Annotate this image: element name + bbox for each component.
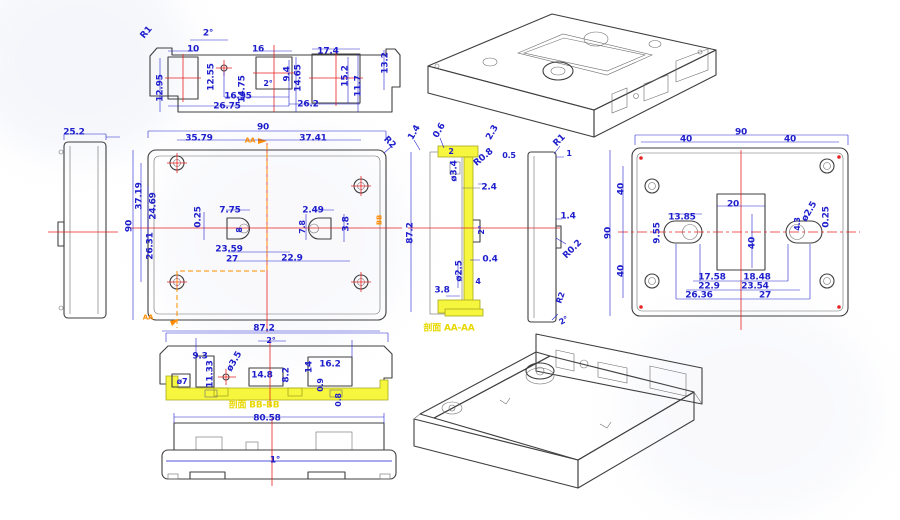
dim-label: 15.2 (342, 65, 351, 86)
dim-label: 0.5 (502, 152, 516, 160)
dim-label: 9.4 (284, 66, 293, 81)
drawing-canvas: R12°1012.5512.95169.42°14.7514.6517.415.… (0, 0, 900, 500)
dim-label: 1 (566, 150, 571, 158)
dim-label: 16.2 (319, 361, 340, 370)
dim-label: 2° (478, 225, 486, 234)
dim-label: 4 (475, 278, 480, 286)
dim-label: 7.8 (299, 220, 307, 234)
dim-label: 25.2 (63, 129, 84, 138)
dim-label: 80.58 (253, 415, 280, 424)
dim-label: ø2.5 (801, 201, 819, 224)
dim-label: 40 (618, 265, 627, 277)
dim-label: 40 (749, 237, 758, 249)
dim-label: 0.8 (335, 393, 343, 407)
dim-label: 2° (558, 315, 570, 327)
dim-label: ø3.5 (226, 351, 244, 374)
dim-label: R0.2 (562, 239, 584, 261)
dim-label: 16.95 (224, 93, 251, 102)
dim-label: 14.65 (295, 64, 304, 91)
dim-label: 26.36 (685, 292, 712, 301)
dim-label: 2° (266, 337, 275, 345)
dim-label: 40 (680, 136, 692, 145)
dim-label: 剖面 AA-AA (423, 325, 474, 334)
dim-label: ø2.5 (456, 260, 465, 281)
dim-label: 4.3 (794, 217, 802, 231)
dim-label: 37.19 (136, 182, 145, 209)
dim-label: 2° (203, 30, 213, 39)
dim-label: 27 (226, 256, 238, 265)
dim-label: 14.8 (251, 372, 272, 381)
dim-label: 0.25 (823, 206, 832, 227)
dim-label: 3.8 (434, 287, 449, 296)
dim-label: R2 (381, 135, 396, 150)
dim-label: 剖面 BB-BB (229, 402, 280, 411)
dim-label: 13.85 (668, 214, 695, 223)
dim-label: 12.55 (208, 63, 217, 90)
dim-label: 23.59 (215, 246, 242, 255)
dim-label: 2.3 (485, 124, 500, 142)
dim-label: 90 (126, 220, 135, 232)
dim-label: 87.2 (407, 222, 416, 243)
dim-label: 8 (236, 227, 244, 232)
dim-label: 0.25 (195, 206, 204, 227)
dim-label: 7.75 (219, 207, 240, 216)
dim-label: 0.6 (432, 122, 447, 140)
dim-label: 17.4 (317, 48, 338, 57)
dim-label: 40 (618, 183, 627, 195)
dim-label: 2 (448, 148, 453, 156)
dim-label: 2.4 (481, 184, 496, 193)
dim-label: 12.95 (157, 74, 166, 101)
dim-label: 22.9 (281, 255, 302, 264)
dim-label: 37.41 (299, 135, 326, 144)
dim-label: 1° (270, 457, 280, 466)
dim-label: 26.75 (213, 103, 240, 112)
dim-label: R1 (139, 25, 154, 41)
dim-label: 90 (257, 124, 269, 133)
dim-label: 2.49 (302, 207, 323, 216)
dim-label: 35.79 (185, 135, 212, 144)
dim-label: 2° (263, 80, 272, 88)
dim-label: 26.31 (147, 232, 156, 259)
dim-label: 11.33 (207, 360, 216, 387)
dim-label: 14 (306, 361, 315, 373)
dim-label: 40 (784, 136, 796, 145)
dim-label: 10 (187, 46, 199, 55)
dim-label: 0.9 (317, 378, 325, 392)
dim-label: 1.4 (560, 213, 575, 222)
dim-label: AA (245, 138, 255, 145)
dim-label: ø7 (177, 378, 188, 386)
dim-label: ø3.4 (451, 160, 460, 181)
dim-label: 20 (727, 201, 739, 210)
dimension-labels-layer: R12°1012.5512.95169.42°14.7514.6517.415.… (0, 0, 900, 500)
dim-label: 11.7 (355, 75, 364, 96)
dim-label: 13.2 (382, 52, 391, 73)
dim-label: AA (143, 315, 153, 322)
dim-label: 90 (735, 129, 747, 138)
dim-label: 87.2 (253, 325, 274, 334)
dim-label: 24.69 (150, 192, 159, 219)
dim-label: R2 (555, 291, 566, 304)
dim-label: 26.2 (297, 101, 318, 110)
dim-label: BB (377, 215, 384, 225)
dim-label: 9.55 (654, 222, 663, 243)
dim-label: R0.8 (473, 147, 496, 168)
dim-label: 0.4 (482, 256, 497, 265)
dim-label: 3.8 (343, 216, 352, 231)
dim-label: R1 (552, 133, 567, 148)
dim-label: 90 (605, 227, 614, 239)
dim-label: 8.2 (283, 367, 292, 382)
dim-label: 16 (252, 46, 264, 55)
dim-label: 1.4 (407, 124, 422, 142)
dim-label: 27 (759, 292, 771, 301)
